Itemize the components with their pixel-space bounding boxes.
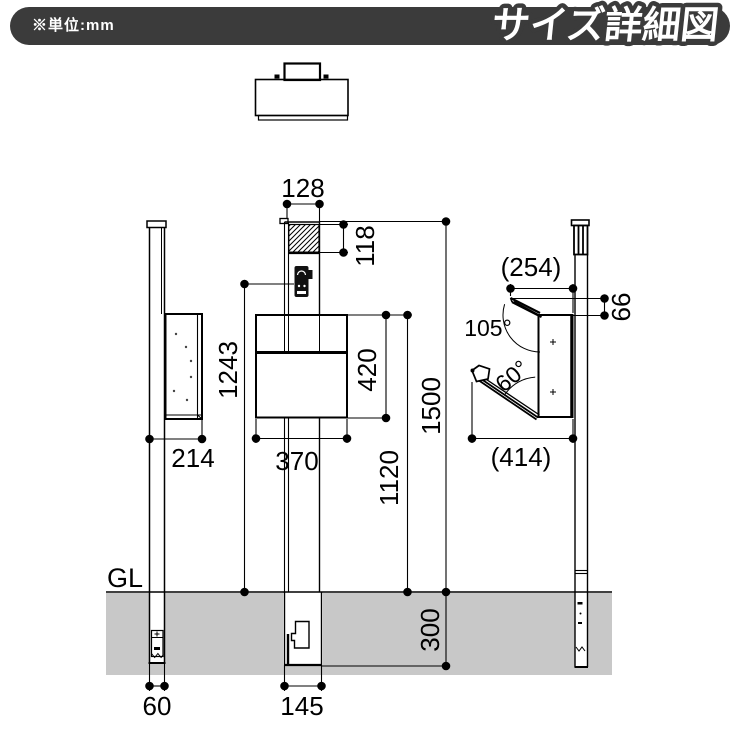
ground-fill (106, 593, 612, 675)
door-handle (472, 366, 490, 382)
right-box-profile (539, 315, 573, 417)
drawing: 128 118 1243 420 370 1120 1500 300 145 6… (0, 0, 740, 740)
dim-open-top-depth: (254) (501, 252, 562, 282)
dim-box-top-to-gl: 1120 (374, 450, 404, 506)
dim-door-angle: 60° (490, 355, 533, 397)
dim-lid-rise: 66 (606, 293, 636, 322)
open-lid (511, 298, 542, 317)
ground (106, 593, 612, 675)
top-view-hinge-left (275, 75, 280, 79)
front-box (256, 315, 347, 418)
top-view-hinge-right (324, 75, 329, 79)
dim-lid-angle: 105° (464, 315, 512, 341)
front-cover-hatched (289, 225, 319, 253)
dim-pole-width: 128 (281, 173, 324, 203)
dim-open-bottom-depth: (414) (491, 442, 552, 472)
dim-box-width: 370 (275, 446, 318, 476)
intercom (295, 266, 313, 297)
ground-line-label: GL (107, 563, 143, 593)
top-view-pole (285, 64, 321, 81)
dim-cover-height: 118 (350, 225, 380, 266)
dim-embed-width: 145 (280, 691, 323, 721)
left-box-profile (166, 314, 203, 419)
dim-box-height: 420 (352, 348, 382, 391)
left-pole-cap (147, 221, 166, 228)
right-pole-cap-body (574, 226, 588, 255)
dim-pole-side-width: 60 (143, 691, 172, 721)
top-view (256, 64, 349, 121)
dim-side-depth: 214 (171, 443, 214, 473)
size-detail-diagram: ※単位:mm サイズ詳細図 (0, 0, 740, 740)
top-view-body (256, 80, 349, 116)
dim-intercom-height: 1243 (213, 341, 243, 399)
left-pole-anchor (152, 631, 164, 658)
dim-embed-depth: 300 (415, 608, 445, 651)
intercom-slot (297, 291, 306, 294)
dim-pole-height: 1500 (416, 377, 446, 435)
